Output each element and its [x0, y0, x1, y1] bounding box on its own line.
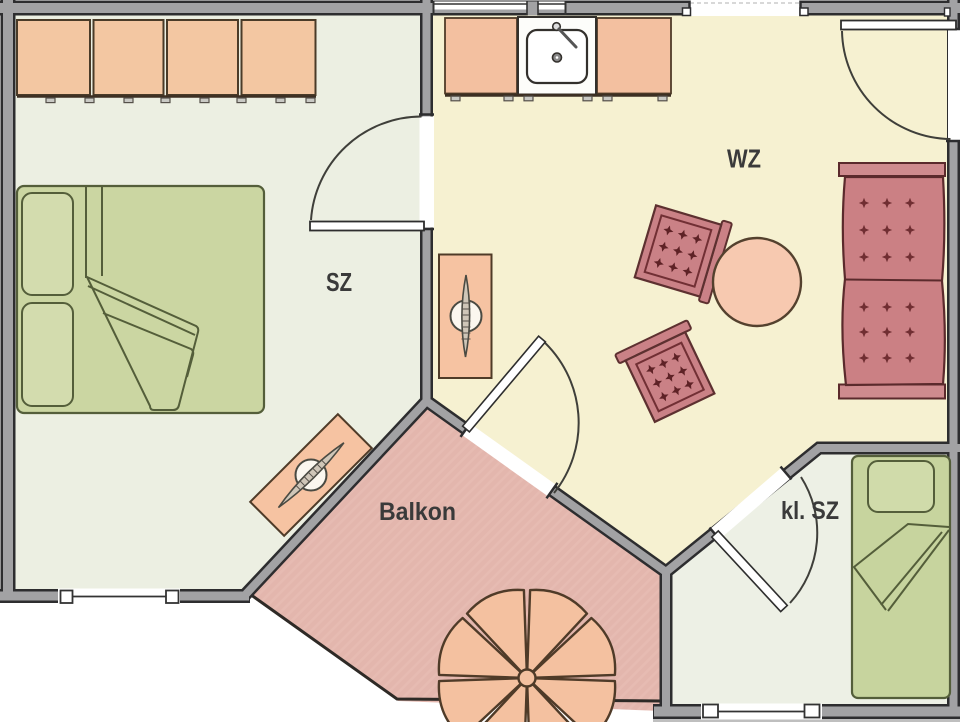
- svg-text:Balkon: Balkon: [379, 498, 456, 526]
- svg-text:WZ: WZ: [727, 144, 761, 174]
- svg-text:SZ: SZ: [326, 267, 352, 297]
- svg-text:kl. SZ: kl. SZ: [781, 497, 839, 525]
